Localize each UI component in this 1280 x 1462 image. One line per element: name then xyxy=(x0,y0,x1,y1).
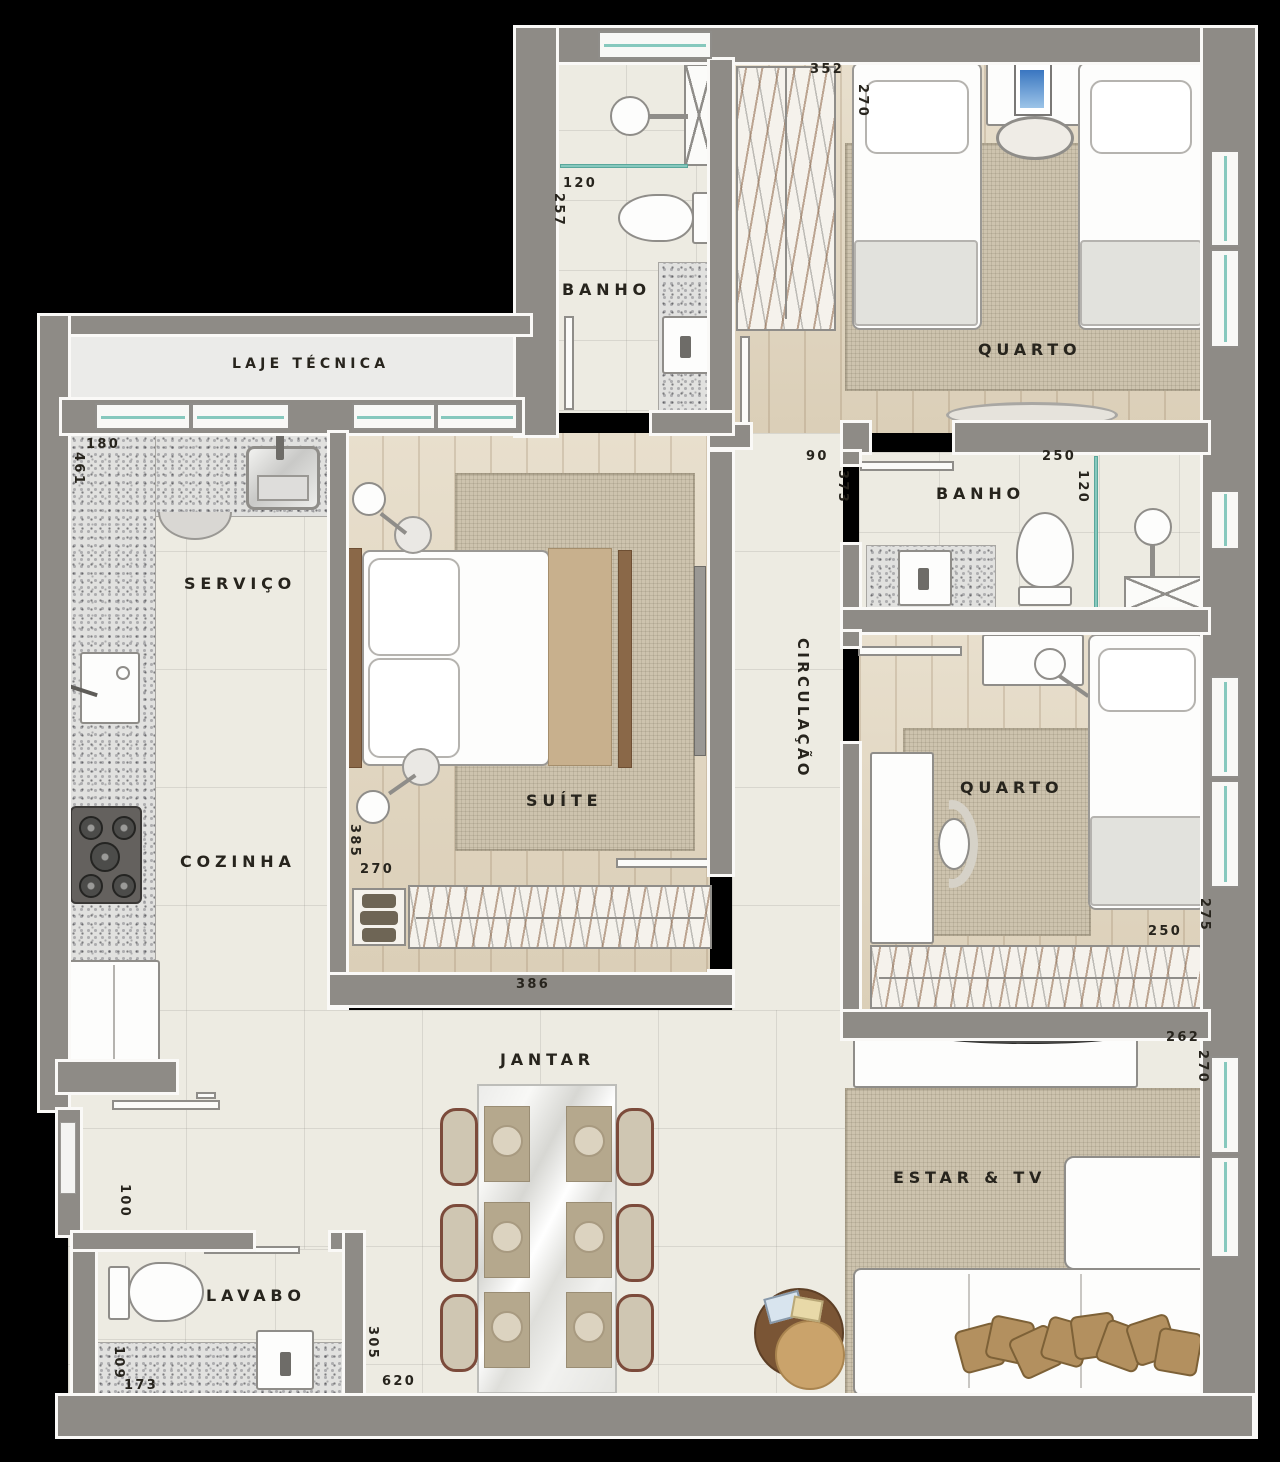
lamp xyxy=(352,482,386,516)
entry-door xyxy=(112,1100,220,1110)
drawer xyxy=(362,928,396,942)
dim-servico-height: 461 xyxy=(71,452,86,486)
dim-estar-height: 270 xyxy=(1195,1050,1210,1084)
dim-suite-height: 385 xyxy=(347,824,362,858)
quarto-lower-bed xyxy=(1088,634,1206,910)
window-glass xyxy=(1224,786,1227,882)
dim-banho-social-height: 120 xyxy=(1075,470,1090,504)
wall xyxy=(516,28,556,435)
toilet-bowl xyxy=(618,194,694,242)
plate xyxy=(573,1311,605,1343)
window-glass xyxy=(1224,1162,1227,1252)
dining-chair xyxy=(440,1108,478,1186)
pillow xyxy=(865,80,969,154)
drain xyxy=(116,666,130,680)
room-label-laje-tecnica: LAJE TÉCNICA xyxy=(232,356,389,372)
suite-headboard xyxy=(348,548,362,768)
wall xyxy=(52,316,530,334)
dim-jantar-width: 620 xyxy=(382,1374,416,1389)
toilet-bowl xyxy=(128,1262,204,1322)
window xyxy=(95,403,191,430)
pillow xyxy=(368,558,460,656)
wardrobe-rail xyxy=(785,68,787,319)
plate xyxy=(573,1125,605,1157)
banho-suite-door xyxy=(564,316,574,410)
dim-circulacao-width: 90 xyxy=(806,449,829,464)
burner xyxy=(112,874,136,898)
placemat xyxy=(484,1106,530,1182)
burner xyxy=(112,816,136,840)
window-glass xyxy=(441,416,513,419)
window-glass xyxy=(604,44,705,47)
wall xyxy=(843,610,1208,632)
wall xyxy=(58,1062,176,1092)
blanket xyxy=(1080,240,1202,326)
dining-chair xyxy=(616,1108,654,1186)
placemat xyxy=(566,1292,612,1368)
window xyxy=(1210,490,1240,550)
window xyxy=(436,403,518,430)
window xyxy=(191,403,290,430)
drawer xyxy=(360,911,398,925)
wall xyxy=(843,545,859,612)
cooktop xyxy=(70,806,142,904)
quarto-lower-shelf xyxy=(982,634,1084,686)
side-table-small xyxy=(775,1320,845,1390)
window xyxy=(1210,249,1240,348)
window xyxy=(1210,1056,1240,1154)
suite-footboard xyxy=(618,550,632,768)
wardrobe-rail xyxy=(879,977,1198,979)
room-label-suite: SUÍTE xyxy=(526,791,602,810)
shower-glass xyxy=(560,164,688,168)
dim-quarto-top-height: 270 xyxy=(855,84,870,118)
dining-chair xyxy=(616,1294,654,1372)
toilet-bowl xyxy=(1016,512,1074,588)
window-glass xyxy=(357,416,431,419)
room-label-quarto-lower: QUARTO xyxy=(960,778,1063,797)
wall xyxy=(330,433,346,1007)
window xyxy=(598,31,712,59)
suite-dresser xyxy=(352,888,406,946)
window-glass xyxy=(101,416,186,419)
dim-lavabo-width: 173 xyxy=(124,1378,158,1393)
dim-quarto-lower-height: 275 xyxy=(1197,898,1212,932)
placemat xyxy=(484,1202,530,1278)
wall xyxy=(710,452,732,874)
placemat xyxy=(566,1106,612,1182)
wardrobe-rail xyxy=(416,917,704,919)
toilet-tank xyxy=(692,192,712,244)
dim-jantar-height: 305 xyxy=(365,1326,380,1360)
wall xyxy=(843,744,859,1012)
entry-door-handle xyxy=(196,1092,216,1099)
sofa-chaise xyxy=(1064,1156,1210,1270)
quarto-lower-desk xyxy=(870,752,934,944)
plate xyxy=(491,1125,523,1157)
shower-stem xyxy=(1150,544,1155,580)
dining-chair xyxy=(616,1204,654,1282)
dim-estar-width: 262 xyxy=(1166,1030,1200,1045)
quarto-top-wardrobe xyxy=(736,66,836,331)
placemat xyxy=(566,1202,612,1278)
plate xyxy=(491,1311,523,1343)
wall xyxy=(40,316,68,1110)
desk-chair-seat xyxy=(938,818,970,870)
drawer xyxy=(362,894,396,908)
suite-wardrobe xyxy=(408,885,712,949)
dim-lavabo-height: 109 xyxy=(111,1346,126,1380)
room-label-cozinha: COZINHA xyxy=(180,852,296,871)
dim-circulacao-height: 373 xyxy=(835,470,850,504)
sofa-cushion xyxy=(1153,1327,1204,1378)
dim-servico-width: 180 xyxy=(86,437,120,452)
room-label-jantar: JANTAR xyxy=(500,1050,595,1069)
floor-plan: LAJE TÉCNICA SERVIÇO COZINHA BANHO QUART… xyxy=(0,0,1280,1462)
tank-faucet xyxy=(276,430,284,460)
suite-tv-panel xyxy=(694,566,706,756)
banho-suite-faucet xyxy=(680,336,691,358)
window-glass xyxy=(1224,255,1227,342)
room-label-servico: SERVIÇO xyxy=(184,574,296,593)
quarto-lower-wardrobe xyxy=(870,945,1206,1009)
shower-tray xyxy=(1124,576,1206,612)
wall-niche xyxy=(60,1122,76,1194)
blanket xyxy=(854,240,978,326)
room-label-lavabo: LAVABO xyxy=(206,1286,306,1305)
shower-head xyxy=(1134,508,1172,546)
toilet-tank xyxy=(1018,586,1072,606)
burner xyxy=(79,816,103,840)
room-label-banho-social: BANHO xyxy=(936,484,1025,503)
window xyxy=(1210,676,1240,778)
lavabo-faucet xyxy=(280,1352,291,1376)
dim-quarto-lower-width: 250 xyxy=(1148,924,1182,939)
shower-head xyxy=(610,96,650,136)
wall xyxy=(843,423,869,452)
dining-chair xyxy=(440,1294,478,1372)
pillow xyxy=(1098,648,1196,712)
room-label-circulacao: CIRCULAÇÃO xyxy=(794,638,812,779)
window-glass xyxy=(1224,494,1227,546)
quarto-lower-door xyxy=(858,646,962,656)
wall xyxy=(58,1396,1252,1436)
pillow xyxy=(368,658,460,758)
blanket xyxy=(1090,816,1204,906)
room-label-quarto-top: QUARTO xyxy=(978,340,1081,359)
quarto-top-stool xyxy=(996,116,1074,160)
wall xyxy=(843,1012,1208,1038)
placemat xyxy=(484,1292,530,1368)
suite-nightstand xyxy=(394,516,432,554)
dim-banho-suite-width: 120 xyxy=(563,176,597,191)
dim-suite-width: 270 xyxy=(360,862,394,877)
dim-banho-suite-height: 257 xyxy=(551,193,566,227)
pillow xyxy=(1090,80,1192,154)
shower-arm xyxy=(646,114,688,119)
wall xyxy=(652,413,732,433)
quarto-top-bed-left xyxy=(852,62,982,330)
wall xyxy=(710,60,732,432)
dim-quarto-top-width: 352 xyxy=(810,62,844,77)
tablet xyxy=(1014,62,1052,116)
dining-chair xyxy=(440,1204,478,1282)
room-label-estar-tv: ESTAR & TV xyxy=(893,1168,1046,1187)
plate xyxy=(573,1221,605,1253)
window xyxy=(1210,780,1240,888)
room-label-banho-suite: BANHO xyxy=(562,280,651,299)
shower-glass xyxy=(1094,456,1098,608)
lamp xyxy=(356,790,390,824)
quarto-top-door xyxy=(740,336,750,432)
tank-basin xyxy=(257,475,309,501)
wall xyxy=(955,423,1208,452)
toilet-tank xyxy=(108,1266,130,1320)
plate xyxy=(491,1221,523,1253)
burner xyxy=(79,874,103,898)
window xyxy=(1210,150,1240,247)
dim-banho-social-width: 250 xyxy=(1042,449,1076,464)
dim-entry-height: 100 xyxy=(117,1184,132,1218)
dim-suite-door-width: 386 xyxy=(516,977,550,992)
banho-social-door xyxy=(860,461,954,471)
window-glass xyxy=(1224,156,1227,242)
window-glass xyxy=(197,416,284,419)
suite-door xyxy=(616,858,712,868)
window xyxy=(1210,1156,1240,1258)
kitchen-sink xyxy=(80,652,140,724)
circulacao-floor xyxy=(732,433,843,1012)
suite-bed-throw xyxy=(548,548,612,766)
burner xyxy=(90,842,120,872)
wall xyxy=(73,1233,253,1249)
fridge-door-split xyxy=(113,965,115,1059)
quarto-top-bed-right xyxy=(1078,62,1206,330)
window-glass xyxy=(1224,1062,1227,1149)
wall xyxy=(345,1233,363,1413)
wall xyxy=(843,632,859,646)
banho-social-faucet xyxy=(918,568,929,590)
window xyxy=(352,403,436,430)
tablet-screen xyxy=(1020,70,1044,108)
fridge xyxy=(66,960,160,1064)
window-glass xyxy=(1224,682,1227,772)
wall xyxy=(73,1233,95,1413)
wall xyxy=(843,452,859,464)
